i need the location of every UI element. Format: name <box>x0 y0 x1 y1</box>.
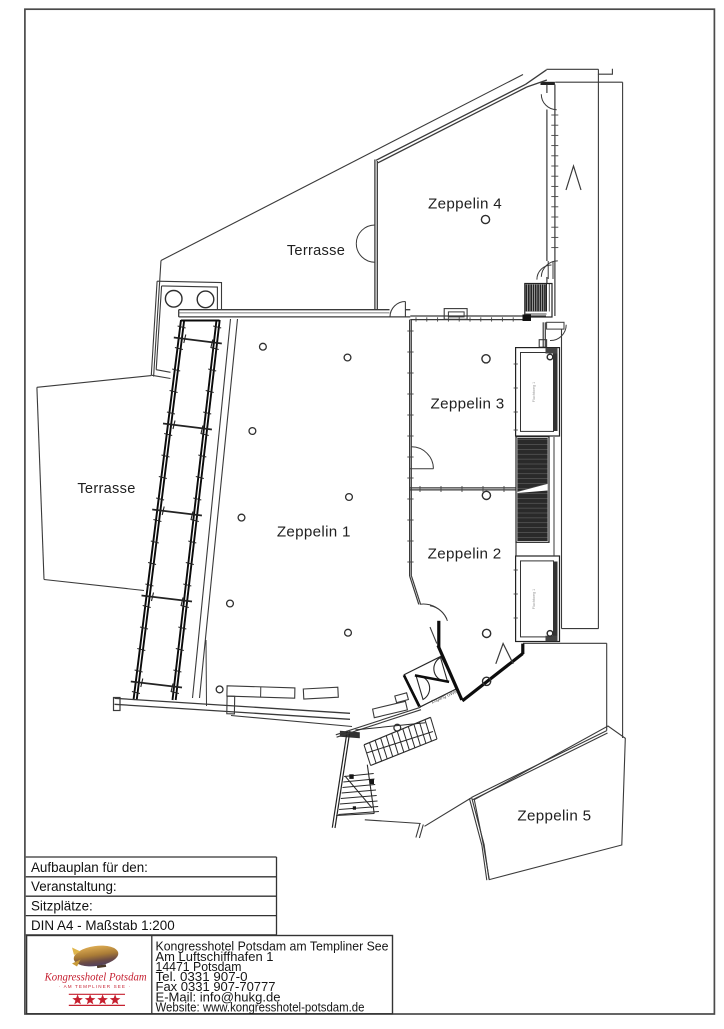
svg-text:Fluchtweg 1: Fluchtweg 1 <box>532 382 536 402</box>
svg-text:· AM TEMPLINER SEE ·: · AM TEMPLINER SEE · <box>59 984 131 989</box>
svg-text:Terrasse: Terrasse <box>287 243 345 259</box>
svg-text:Zeppelin 5: Zeppelin 5 <box>517 808 591 825</box>
svg-text:Aufbauplan für den:: Aufbauplan für den: <box>31 860 148 875</box>
svg-text:Terrasse: Terrasse <box>77 481 135 497</box>
svg-text:Veranstaltung:: Veranstaltung: <box>31 879 117 894</box>
svg-text:DIN A4 - Maßstab 1:200: DIN A4 - Maßstab 1:200 <box>31 918 175 933</box>
svg-text:Website: www.kongresshotel-pot: Website: www.kongresshotel-potsdam.de <box>156 1000 365 1015</box>
svg-text:Zeppelin 3: Zeppelin 3 <box>431 396 505 413</box>
svg-text:Sitzplätze:: Sitzplätze: <box>31 899 93 914</box>
svg-text:Zeppelin 2: Zeppelin 2 <box>428 545 502 562</box>
svg-text:Zeppelin 4: Zeppelin 4 <box>428 196 502 213</box>
svg-text:Zeppelin 1: Zeppelin 1 <box>277 524 351 541</box>
svg-text:Kongresshotel Potsdam: Kongresshotel Potsdam <box>44 971 147 983</box>
svg-text:Fluchtweg 1: Fluchtweg 1 <box>532 589 536 609</box>
